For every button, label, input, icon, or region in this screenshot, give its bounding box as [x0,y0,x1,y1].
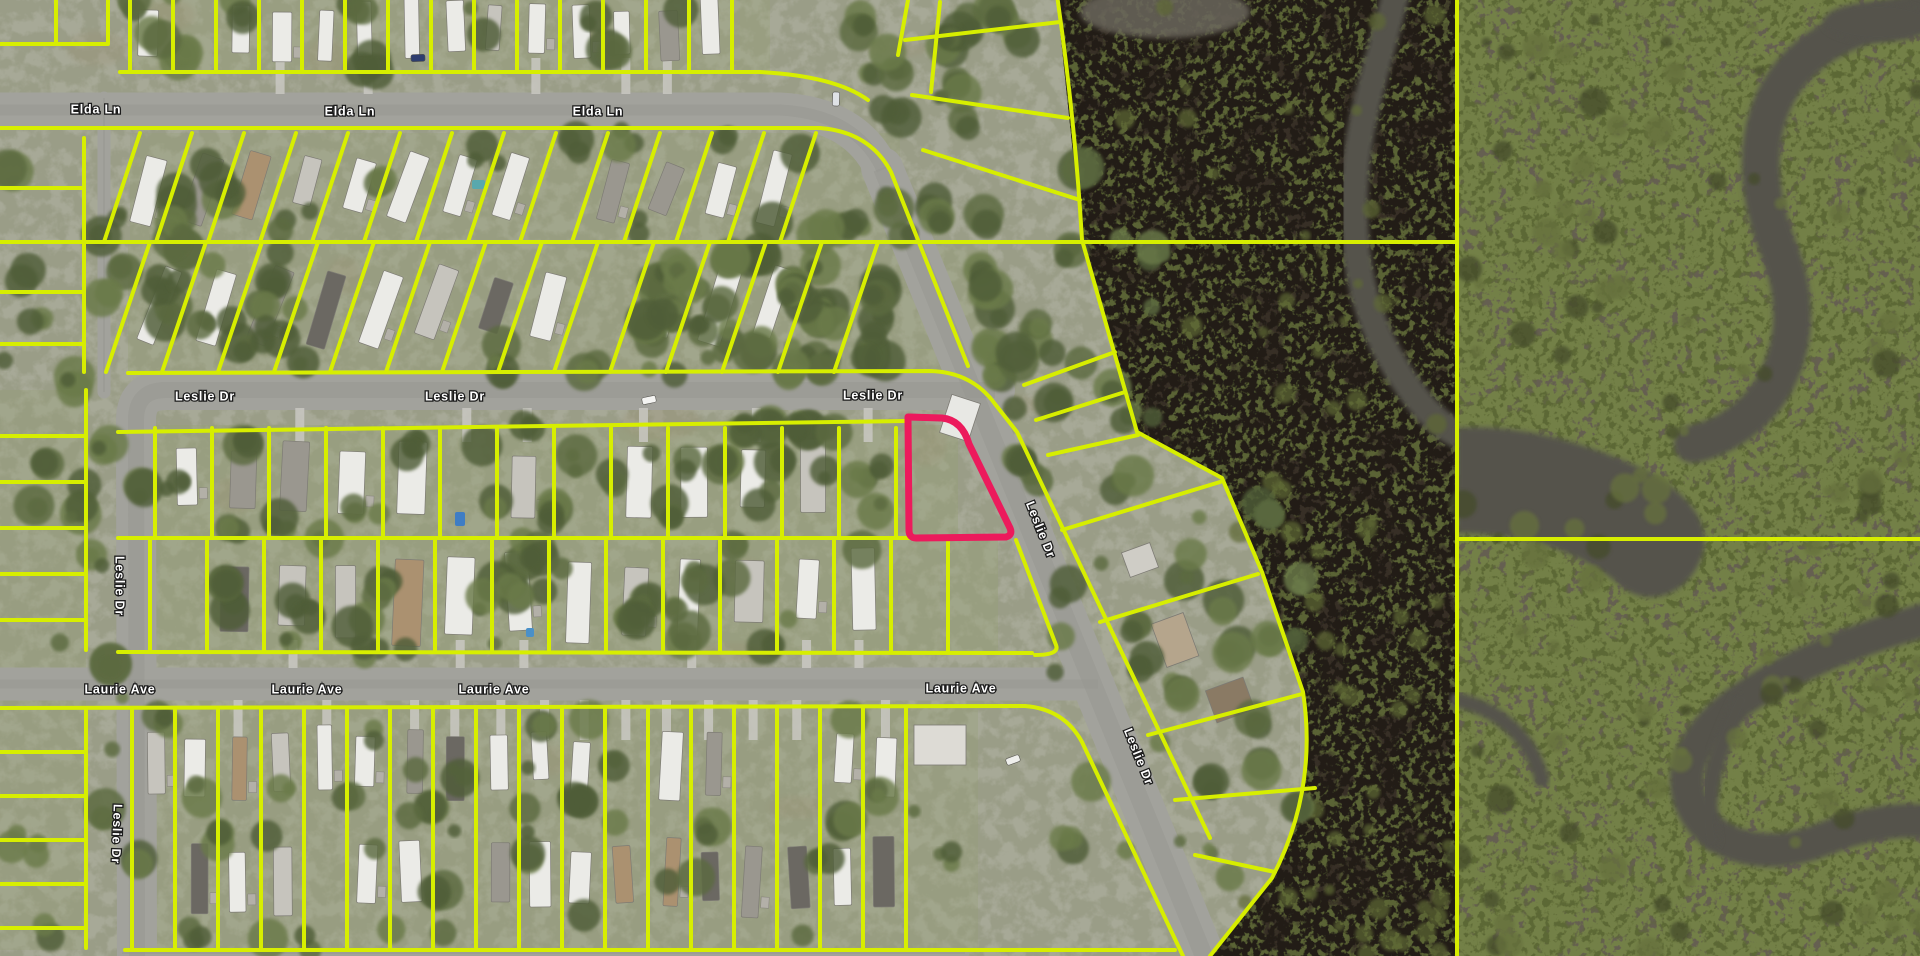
street-label: Leslie Dr [109,804,125,864]
mangrove-area [1445,0,1920,956]
street-label: Laurie Ave [85,682,156,696]
street-label: Leslie Dr [425,389,485,403]
street-label: Leslie Dr [843,388,903,402]
aerial-map-viewport[interactable]: Elda LnElda LnElda LnLeslie DrLeslie DrL… [0,0,1920,956]
street-label: Elda Ln [325,104,376,118]
street-label: Laurie Ave [926,681,997,695]
street-label: Laurie Ave [459,682,530,696]
street-label: Leslie Dr [175,389,235,403]
street-label: Leslie Dr [113,556,127,616]
street-label: Elda Ln [573,104,624,118]
street-label: Laurie Ave [272,682,343,696]
aerial-map-canvas[interactable]: Elda LnElda LnElda LnLeslie DrLeslie DrL… [0,0,1920,956]
street-label: Elda Ln [71,102,122,116]
